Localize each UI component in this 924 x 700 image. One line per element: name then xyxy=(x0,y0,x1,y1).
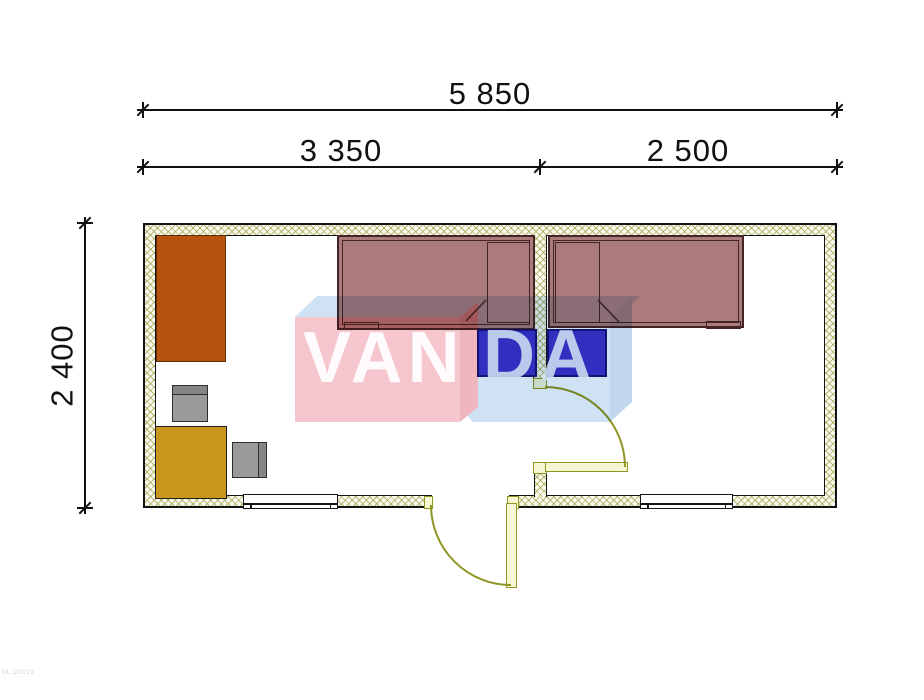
watermark-text-van: VAN xyxy=(303,322,465,394)
drawing-corner-code: DL.102/23 xyxy=(2,670,34,676)
floor-plan-canvas: 5 850 3 350 2 500 2 400 xyxy=(0,0,924,700)
watermark-text-da: DA xyxy=(483,320,597,392)
watermark-blue-cube-side xyxy=(610,298,632,422)
